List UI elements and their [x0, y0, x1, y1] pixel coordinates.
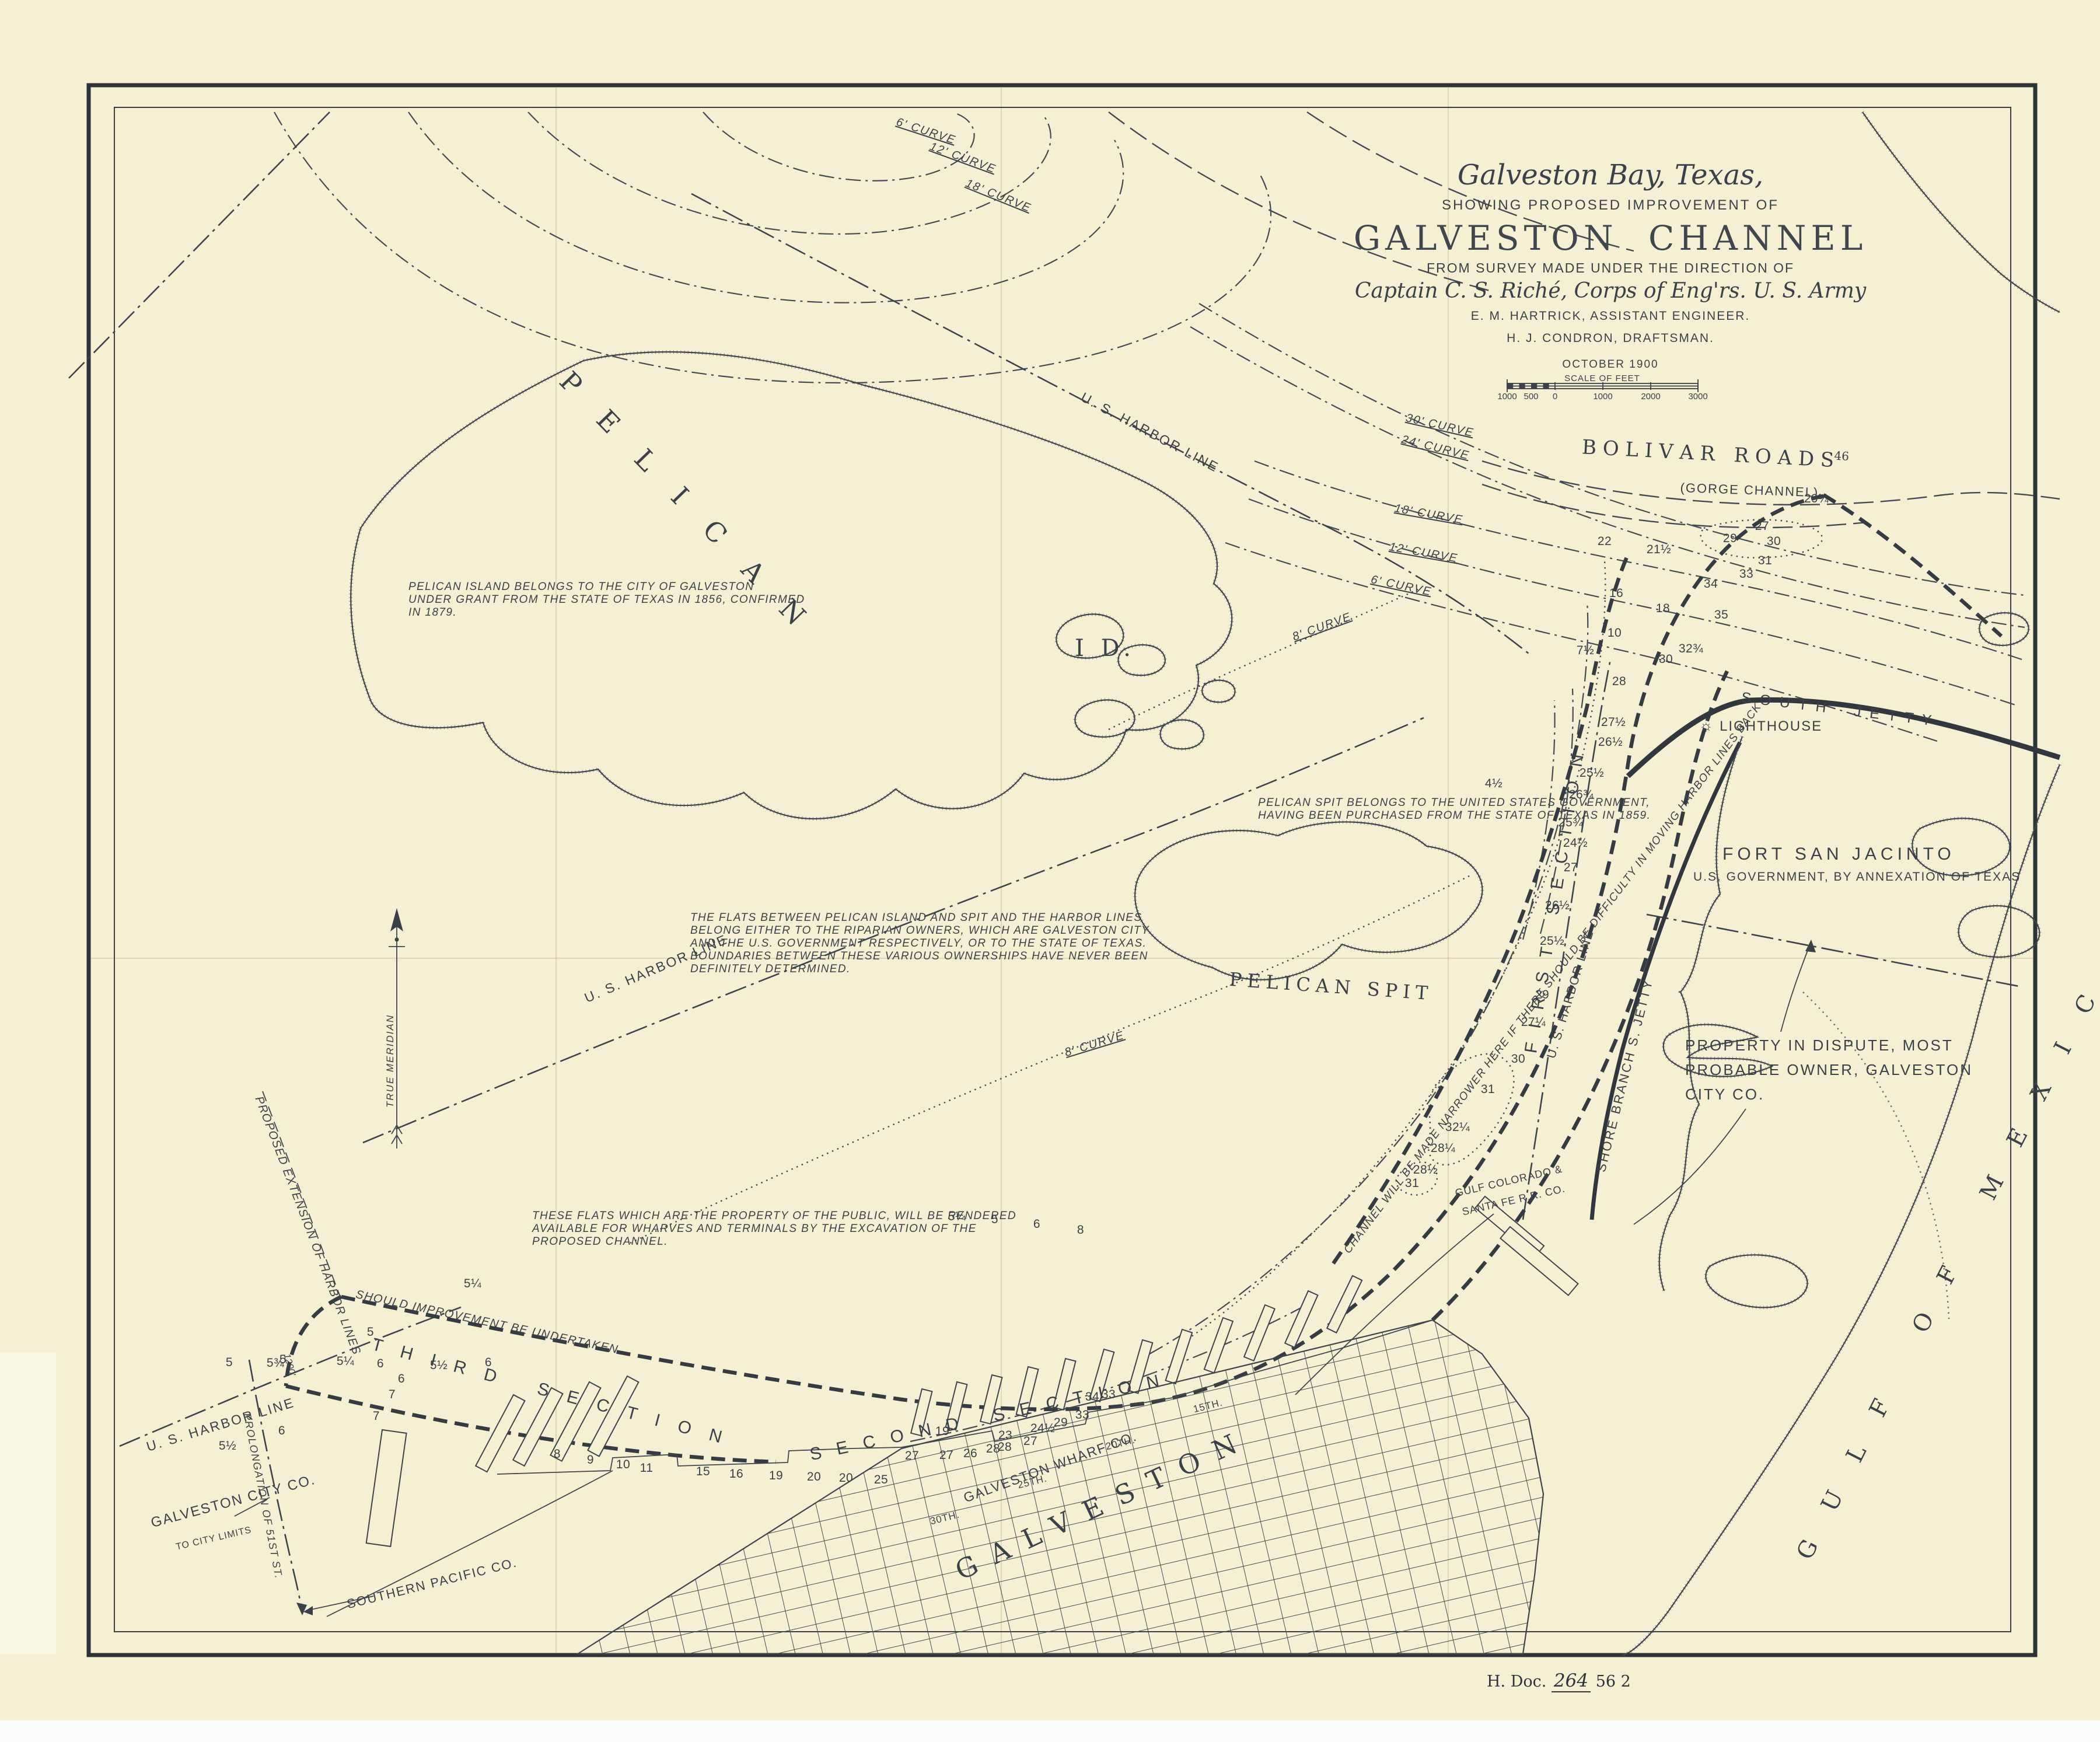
sounding-value: 16 [1609, 587, 1623, 601]
map-credit-2: H. J. CONDRON, DRAFTSMAN. [1507, 331, 1714, 345]
sounding-value: 31 [1481, 1083, 1495, 1097]
sounding-value: 26½ [1598, 735, 1623, 749]
sounding-value: 20 [839, 1471, 853, 1485]
pelican-island-ownership-note: PELICAN ISLAND BELONGS TO THE CITY OF GA… [408, 581, 805, 619]
sounding-value: 32¼ [1445, 1120, 1470, 1134]
scan-background-strip [0, 1720, 2100, 1742]
sounding-value: 31 [1758, 554, 1772, 568]
sounding-value: 26 [963, 1447, 977, 1461]
sounding-value: 8 [554, 1447, 561, 1461]
sounding-value: 27¼ [1521, 1015, 1546, 1029]
sounding-value: 34 [1085, 1390, 1099, 1404]
sounding-value: 27 [1564, 861, 1578, 875]
sounding-value: 6 [278, 1424, 285, 1438]
sounding-value: 35 [1714, 608, 1728, 622]
sounding-value: 27 [1755, 519, 1769, 533]
scale-tick: 1000 [1591, 392, 1615, 402]
city-grid [578, 1320, 1543, 1654]
sounding-value: 33 [1739, 567, 1753, 581]
sounding-value: 27½ [1601, 715, 1626, 729]
sounding-value: 22 [1598, 535, 1612, 549]
sounding-value: 5 [226, 1356, 233, 1370]
fort-owner-label: U.S. GOVERNMENT, BY ANNEXATION OF TEXAS [1693, 871, 2021, 884]
sounding-value: 5 [367, 1325, 374, 1339]
sounding-value: 27 [939, 1448, 953, 1462]
contours-channel [630, 560, 1605, 1441]
scale-tick: 0 [1543, 392, 1567, 402]
sounding-value: 28 [1612, 675, 1626, 689]
sounding-value: 26¾ [1569, 788, 1594, 802]
sounding-value: 21½ [1647, 543, 1671, 557]
sounding-value: 16 [729, 1467, 743, 1481]
sounding-value: 5¼ [948, 1210, 966, 1224]
house-document-number: H. Doc. 264 56 2 [1487, 1670, 1631, 1691]
scale-tick: 2000 [1639, 392, 1662, 402]
sounding-value: 23 [998, 1429, 1012, 1443]
map-main-title: GALVESTON CHANNEL [1354, 218, 1867, 258]
sounding-value: 6 [1033, 1217, 1040, 1231]
sounding-value: 6 [377, 1357, 384, 1371]
map-subtitle-2: FROM SURVEY MADE UNDER THE DIRECTION OF [1427, 260, 1794, 276]
sounding-value: 5¼ [337, 1354, 354, 1369]
sounding-value: 29 [1723, 532, 1737, 546]
sounding-value: 6 [485, 1356, 492, 1370]
sounding-value: 27 [905, 1449, 919, 1463]
doc-prefix: H. Doc. [1487, 1673, 1546, 1691]
sounding-value: 34 [1704, 577, 1718, 591]
doc-suffix: 56 2 [1596, 1673, 1631, 1691]
sounding-value: 33 [1102, 1388, 1116, 1402]
sounding-value: 29¼ [1804, 492, 1829, 506]
scale-label: SCALE OF FEET [1564, 373, 1640, 383]
sounding-value: 5¼ [464, 1277, 481, 1291]
sounding-value: 10 [1608, 626, 1622, 640]
scale-tick: 500 [1519, 392, 1543, 402]
sounding-value: 32¾ [1679, 642, 1703, 656]
pelican-island-id-label: I D. [1075, 636, 1135, 661]
sounding-value: 4½ [1485, 777, 1503, 791]
sounding-value: 5½ [430, 1359, 448, 1373]
sounding-value: 9 [587, 1453, 594, 1467]
sounding-value: 5¾ [267, 1356, 284, 1370]
sounding-value: 10 [616, 1458, 630, 1472]
map-date: OCTOBER 1900 [1562, 358, 1658, 371]
map-script-title: Galveston Bay, Texas, [1458, 159, 1763, 191]
sounding-value: 7 [389, 1388, 396, 1402]
bolivar-roads-superscript: 46 [1834, 449, 1850, 463]
sounding-value: 25½ [1540, 934, 1564, 948]
sounding-value: 5½ [219, 1439, 236, 1453]
sounding-value: 30 [1659, 652, 1673, 666]
property-dispute-note: PROPERTY IN DISPUTE, MOST PROBABLE OWNER… [1685, 1033, 1973, 1106]
flats-public-note: THESE FLATS WHICH ARE THE PROPERTY OF TH… [532, 1210, 1016, 1248]
map-credit-1: E. M. HARTRICK, ASSISTANT ENGINEER. [1471, 309, 1750, 323]
sounding-value: 18 [1656, 602, 1670, 616]
sounding-value: 19 [769, 1469, 783, 1483]
sounding-value: 24½ [1030, 1422, 1055, 1436]
sounding-value: 29 [1054, 1416, 1068, 1430]
true-meridian-label: TRUE MERIDIAN [385, 1014, 396, 1108]
jetties [1592, 700, 2060, 1220]
sounding-value: 6 [398, 1372, 405, 1386]
sounding-value: 26½ [1545, 899, 1570, 913]
sounding-value: 11 [640, 1461, 654, 1475]
sounding-value: 7½ [1577, 644, 1594, 658]
harbor-lines [69, 112, 2019, 1615]
sounding-value: 7 [373, 1409, 380, 1423]
sounding-value: 29 [1535, 988, 1549, 1002]
sounding-value: 25¾ [1559, 816, 1583, 830]
doc-number-handwritten: 264 [1552, 1670, 1591, 1692]
map-subtitle-1: SHOWING PROPOSED IMPROVEMENT OF [1442, 197, 1779, 214]
scale-tick: 1000 [1495, 392, 1519, 402]
sounding-value: 33 [1075, 1408, 1089, 1422]
map-sheet: Galveston Bay, Texas, SHOWING PROPOSED I… [0, 0, 2100, 1742]
map-credit-script: Captain C. S. Riché, Corps of Eng'rs. U.… [1355, 279, 1866, 303]
sounding-value: 19 [935, 1425, 949, 1439]
fort-san-jacinto-label: FORT SAN JACINTO [1722, 845, 1955, 864]
sounding-value: 15 [696, 1465, 710, 1479]
sounding-value: 27 [1023, 1434, 1037, 1448]
sounding-value: 30 [1511, 1052, 1525, 1066]
scale-tick: 3000 [1686, 392, 1710, 402]
sounding-value: 30 [1767, 535, 1781, 549]
lighthouse-label: ☼ LIGHTHOUSE [1699, 718, 1822, 734]
sounding-value: 28½ [1413, 1163, 1438, 1177]
lighthouse-icon: ☼ [1699, 717, 1720, 734]
lighthouse-text: LIGHTHOUSE [1720, 718, 1822, 734]
sounding-value: 8 [1077, 1223, 1084, 1237]
sounding-value: 31 [1405, 1177, 1419, 1191]
sounding-value: 25 [874, 1473, 888, 1487]
sounding-value: 5 [991, 1213, 998, 1227]
sounding-value: 20 [807, 1470, 821, 1484]
sounding-value: 28¼ [1431, 1141, 1455, 1155]
sounding-value: 25½ [1580, 766, 1604, 780]
flats-ownership-note: THE FLATS BETWEEN PELICAN ISLAND AND SPI… [690, 912, 1149, 976]
sounding-value: 24½ [1563, 836, 1588, 850]
